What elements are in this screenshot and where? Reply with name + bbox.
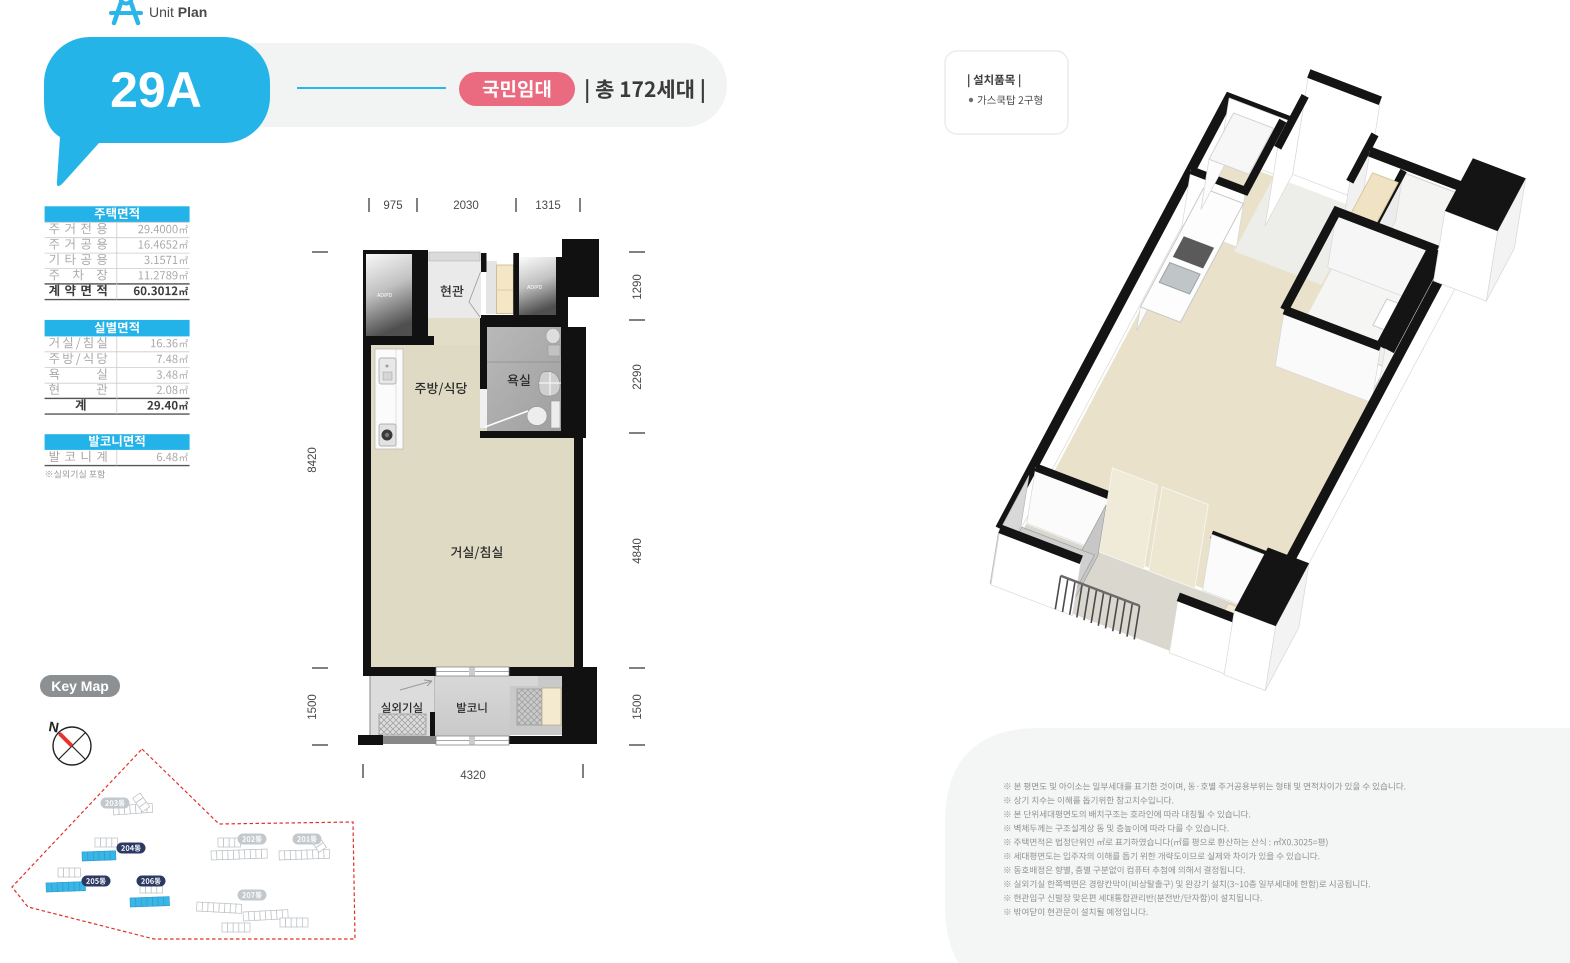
svg-text:8420: 8420 [307,447,319,473]
svg-text:29A: 29A [110,62,202,118]
svg-text:AD/PD: AD/PD [527,285,543,291]
svg-text:2290: 2290 [632,364,644,390]
svg-text:1290: 1290 [632,274,644,300]
svg-text:1315: 1315 [535,200,561,212]
svg-text:Unit Plan: Unit Plan [149,4,207,20]
svg-text:Key Map: Key Map [51,678,109,694]
svg-text:4320: 4320 [460,770,486,782]
svg-text:AD/PD: AD/PD [377,293,393,299]
svg-text:4840: 4840 [632,538,644,564]
svg-text:1500: 1500 [632,694,644,720]
svg-text:2030: 2030 [453,200,479,212]
svg-text:975: 975 [383,200,402,212]
